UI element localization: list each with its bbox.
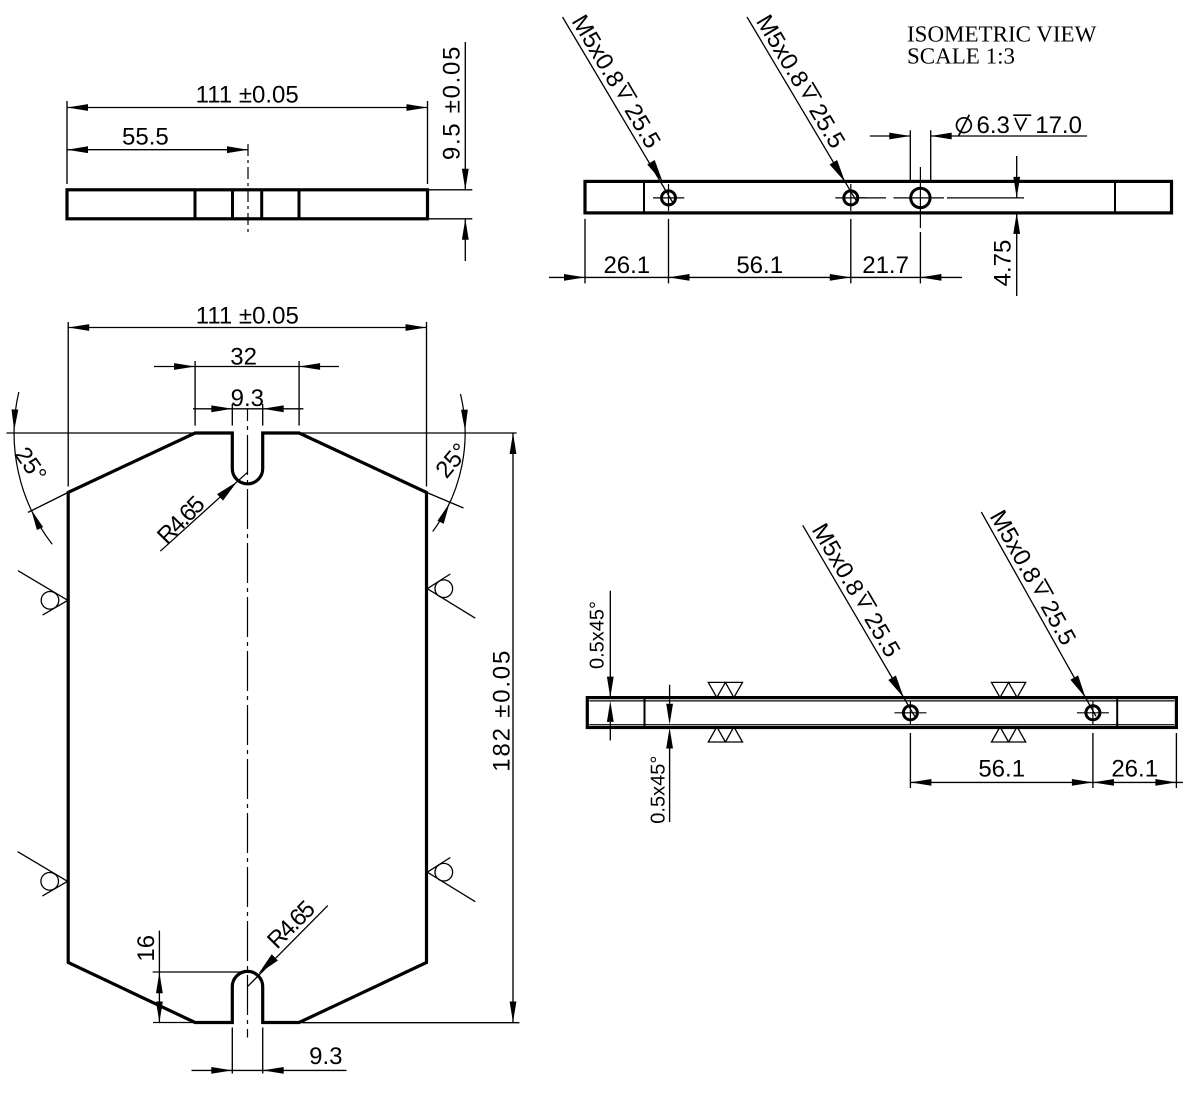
svg-text:0.5x45°: 0.5x45°: [648, 756, 670, 824]
svg-text:17.0: 17.0: [1035, 112, 1082, 139]
svg-text:16: 16: [133, 935, 160, 962]
svg-text:56.1: 56.1: [978, 756, 1025, 783]
svg-text:55.5: 55.5: [122, 124, 169, 151]
svg-text:111 ±0.05: 111 ±0.05: [196, 82, 299, 109]
svg-text:26.1: 26.1: [1111, 756, 1158, 783]
svg-text:111 ±0.05: 111 ±0.05: [196, 302, 299, 329]
svg-text:32: 32: [230, 344, 257, 371]
svg-text:4.75: 4.75: [990, 240, 1017, 287]
svg-text:6.3: 6.3: [977, 112, 1010, 139]
svg-text:SCALE 1:3: SCALE 1:3: [907, 43, 1015, 68]
svg-text:9.3: 9.3: [309, 1043, 342, 1070]
svg-text:9.5 ±0.05: 9.5 ±0.05: [439, 45, 466, 160]
svg-text:56.1: 56.1: [736, 252, 783, 279]
svg-text:0.5x45°: 0.5x45°: [587, 601, 609, 669]
svg-text:21.7: 21.7: [862, 252, 909, 279]
svg-text:182 ±0.05: 182 ±0.05: [489, 649, 516, 772]
svg-text:9.3: 9.3: [231, 385, 264, 412]
svg-text:26.1: 26.1: [603, 252, 650, 279]
